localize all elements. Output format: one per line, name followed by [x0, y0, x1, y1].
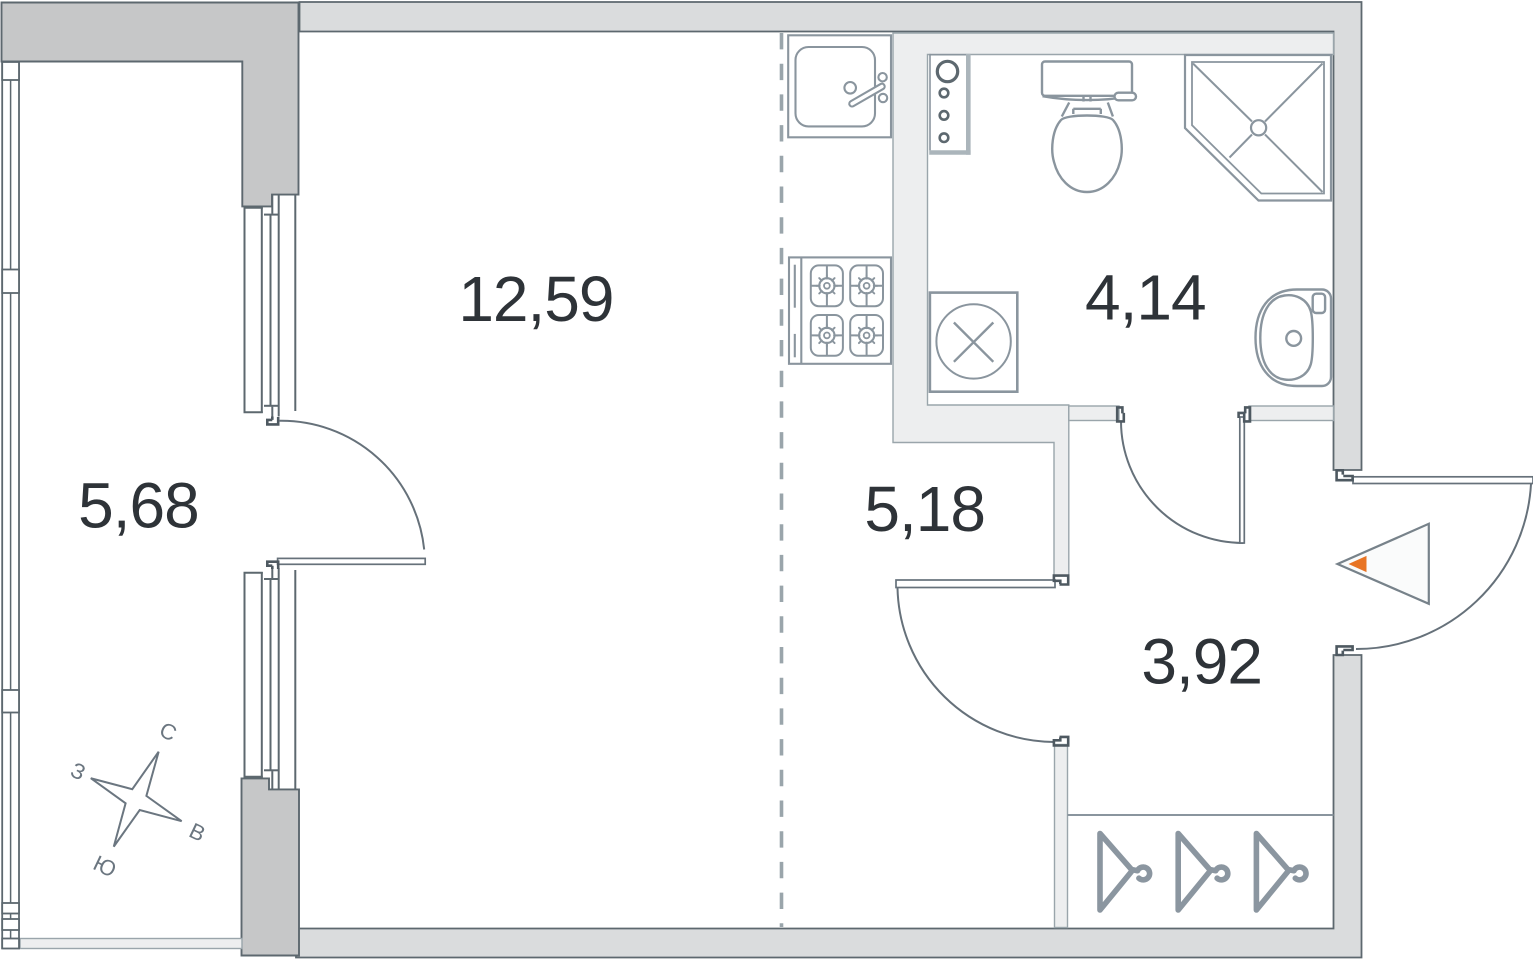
svg-text:5,68: 5,68: [78, 469, 199, 541]
svg-text:4,14: 4,14: [1085, 262, 1206, 334]
svg-text:5,18: 5,18: [864, 473, 985, 545]
svg-text:12,59: 12,59: [458, 263, 613, 335]
svg-text:3,92: 3,92: [1141, 626, 1262, 698]
